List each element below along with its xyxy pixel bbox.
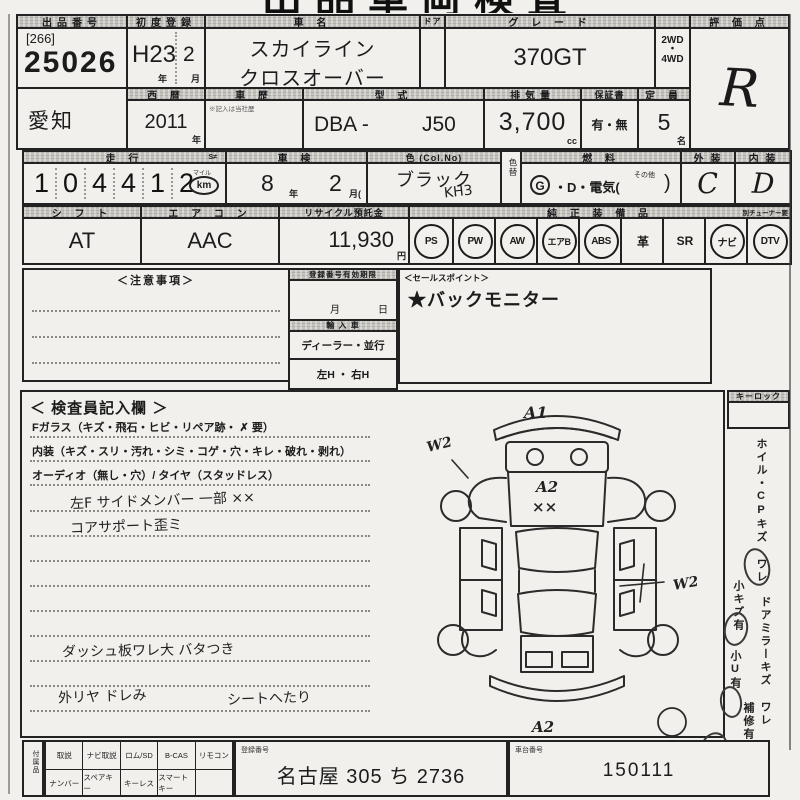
score-value: R [718,58,760,120]
registration-label: 登録番号 [241,745,269,755]
caution-line-1 [32,310,280,312]
unit-year: 年 [158,72,167,85]
region-value: 愛知 [18,89,126,135]
mileage-digit-4: 4 [115,168,144,199]
warranty-value: 有・無 [591,116,627,133]
warranty-cell: 有・無 [580,99,639,150]
mark-left-fender: W2 [425,434,454,456]
leather-label: 革 [637,233,649,250]
interior-check-line: 内装（キズ・スリ・汚れ・シミ・コゲ・穴・キレ・破れ・剥れ） [32,443,351,459]
front-panel-shape [506,442,608,472]
small-dent-note: 小U有 [727,650,743,690]
import-options: ディーラー・並行 [301,338,384,353]
equipment-cell-abs: ABS [578,219,622,263]
validity-day: 日 [378,301,388,316]
fuel-other-label: その他 [634,170,655,180]
abs-badge: ABS [584,224,619,259]
registration-cell: 登録番号 名古屋 305 ち 2736 [234,740,508,797]
note-guideline [30,585,370,587]
sales-point-box: ＜セールスポイント＞ ★バックモニター [398,268,712,384]
fuel-paren-close: ) [664,172,671,195]
drive-cell: 2WD ・ 4WD [654,27,691,89]
equipment-cell-sr: SR [662,219,706,263]
mark-hood-xx: ×× [532,498,557,516]
registration-value: 名古屋 305 ち 2736 [236,760,506,789]
keylock-cell [727,401,790,429]
grade-value: 370GT [513,44,586,72]
color-change-cell: 色替 [500,150,522,205]
accessories-grid: 取説 ナビ取説 ロム/SD B-CAS リモコン ナンバー スペアキー キーレス… [44,740,234,797]
exterior-grade-value: C [696,166,720,200]
mileage-digit-1: 1 [28,168,57,199]
calendar-cell: 2011 年 [126,99,206,150]
model-prefix: DBA - [314,113,369,137]
left-front-wheel [441,491,471,521]
auction-sheet: 出品車両検査票 出品番号 初度登録 車 名 ドア グ レ ー ド 評 価 点 [… [0,0,800,800]
first-registration-cell: H23 2 年 月 [126,27,206,89]
pw-label: PW [467,236,482,247]
note-guideline [30,436,370,438]
mileage-digit-5: 1 [144,168,173,199]
history-note: ※記入は当社歴 [206,101,302,113]
color-value: ブラック [368,166,500,192]
sales-point-value: ★バックモニター [400,284,710,312]
fuel-cell: G ・D・電気( その他 ) [520,162,682,205]
hand-note-seat: シートへたり [227,687,312,710]
km-unit-circled: km [189,176,219,195]
acc-rom-sd: ロム/SD [121,742,158,769]
pw-badge: PW [458,224,493,259]
note-guideline [30,460,370,462]
note-guideline [30,484,370,486]
acc-spare-key: スペアキー [83,770,120,796]
score-cell: R [689,27,790,150]
inspector-box: ＜ 検査員記入欄 ＞ Fガラス（キズ・飛石・ヒビ・リペア跡・ ✗ 要） 内装（キ… [20,390,725,738]
equipment-cell-pw: PW [452,219,496,263]
lot-number-cell: [266] 25026 [16,27,128,89]
lot-number: 25026 [18,46,126,80]
sales-point-label: ＜セールスポイント＞ [400,270,710,284]
equipment-cell-leather: 革 [620,219,664,263]
hand-note-dashpanel: ダッシュ板ワレ大 バタつき [62,638,235,661]
drive-dot: ・ [656,46,689,54]
color-code-handwritten: KH3 [443,183,473,202]
mileage-digit-2: 0 [57,168,86,199]
color-change-label: 色替 [507,158,519,177]
repair-note: 補修有 [740,702,756,741]
leather-badge: 革 [637,233,649,250]
car-name-line1: スカイライン [206,33,419,62]
car-damage-diagram: A1 W2 A2 ×× W2 A2 [422,394,724,738]
caution-line-2 [32,336,280,338]
equipment-cell-dtv: DTV [746,219,792,263]
mark-front-bumper: A1 [522,403,548,422]
history-cell: ※記入は当社歴 [204,99,304,150]
mark-rear-bumper: A2 [530,718,554,736]
note-guideline [30,710,370,712]
fuel-gasoline-circled: G [530,175,550,195]
grade-cell: 370GT [444,27,656,89]
ps-badge: PS [414,224,449,259]
acc-manual: 取説 [46,742,83,769]
mark-right-side: W2 [672,574,700,594]
acc-remote: リモコン [196,742,232,769]
handle-options-cell: 左H ・ 右H [288,358,398,390]
airbag-label: エアB [548,235,571,248]
abs-label: ABS [591,236,611,247]
recycle-value: 11,930 [280,227,394,253]
aircon-value: AAC [187,228,232,254]
aircon-cell: AAC [140,217,280,265]
validity-month: 月 [330,301,340,316]
accessories-label: 付属品 [30,750,40,774]
mileage-cell: 104412 マイル km [22,162,227,205]
acc-navi-manual: ナビ取説 [83,742,120,769]
drive-4wd: 4WD [656,54,689,65]
region-cell: 愛知 [16,87,128,150]
hand-note-outer: 外リヤ ドレみ [58,684,147,707]
first-reg-divider [175,32,177,84]
audio-tire-check-line: オーディオ（無し・穴）/ タイヤ（スタッドレス） [32,467,279,483]
displacement-cell: 3,700 cc [483,99,582,150]
color-cell: ブラック KH3 [366,162,502,205]
door-mirror-note: ドアミラーキズ ワレ [757,596,773,727]
mileage-header-s: S≠ [208,154,217,161]
capacity-value: 5 [639,109,689,136]
equipment-cell-airbag: エアB [536,219,580,263]
hand-circle-mark [658,708,686,736]
sunroof-badge: SR [677,234,694,248]
shaken-year-value: 8 [261,170,274,197]
right-rear-wheel [648,625,678,655]
rear-window-shape [518,590,596,636]
model-value: J50 [422,113,456,137]
chassis-cell: 車台番号 150111 [508,740,770,797]
note-guideline [30,610,370,612]
aw-badge: AW [500,224,535,259]
recycle-cell: 11,930 円 [278,217,410,265]
rear-bumper-shape [490,676,624,701]
equipment-cell-aw: AW [494,219,538,263]
acc-bcas: B-CAS [158,742,195,769]
sheet-title-clipped: 出品車両検査票 [262,0,622,13]
windshield-shape [516,528,598,572]
recycle-unit: 円 [397,249,406,262]
caution-line-3 [32,362,280,364]
dtv-badge: DTV [753,224,788,259]
shaken-cell: 8 年 2 月( [225,162,368,205]
caution-box: ＜注意事項＞ [22,268,290,382]
calendar-value: 2011 [128,111,204,134]
displacement-unit: cc [567,136,577,146]
hand-stroke-left [452,460,468,478]
chassis-label: 車台番号 [515,745,543,755]
accessories-label-cell: 付属品 [22,740,44,797]
navi-badge: ナビ [710,224,745,259]
capacity-unit: 名 [677,134,686,147]
model-code-cell: DBA - J50 [302,99,485,150]
tuner-note: 別チューナー要 [743,207,789,217]
shaken-month-unit: 月( [349,187,361,200]
interior-grade-value: D [751,167,775,201]
scan-edge-right [789,14,791,750]
acc-smart-key: スマートキー [158,770,195,796]
calendar-unit: 年 [192,133,201,146]
validity-cell: 月 日 [288,279,398,321]
hand-circle-scratch [721,610,751,648]
right-front-wheel [645,491,675,521]
left-rear-wheel [438,625,468,655]
first-reg-month: 2 [183,43,195,67]
shaken-month-value: 2 [329,170,342,197]
note-guideline [30,635,370,637]
capacity-cell: 5 名 [637,99,691,150]
acc-keyless: キーレス [121,770,158,796]
displacement-value: 3,700 [485,108,580,137]
aw-label: AW [509,236,524,247]
shift-cell: AT [22,217,142,265]
ps-label: PS [425,236,437,247]
fuel-options: ・D・電気( [554,177,620,196]
navi-label: ナビ [718,234,737,249]
chassis-value: 150111 [510,760,768,782]
mileage-digit-3: 4 [86,168,115,199]
equipment-row: PS PW AW エアB ABS 革 SR ナビ DTV [408,217,792,265]
shaken-year-unit: 年 [289,187,298,200]
equipment-cell-ps: PS [410,219,452,263]
lot-bracket: [266] [18,29,126,46]
exterior-grade-cell: C [680,162,736,205]
unit-month: 月 [191,72,200,85]
shift-value: AT [69,228,95,254]
acc-number-plate: ナンバー [46,770,83,796]
sheet-title-text: 出品車両検査票 [262,0,622,13]
acc-empty [196,770,232,796]
first-reg-era: H23 [132,41,176,69]
handle-options: 左H ・ 右H [317,367,370,382]
glass-check-line: Fガラス（キズ・飛石・ヒビ・リペア跡・ ✗ 要） [32,419,274,435]
equipment-cell-navi: ナビ [704,219,748,263]
interior-grade-cell: D [734,162,792,205]
door-cell [419,27,446,89]
sunroof-label: SR [677,234,694,248]
scan-edge-left [8,14,10,794]
airbag-badge: エアB [542,224,577,259]
caution-label: ＜注意事項＞ [24,272,288,288]
car-name-cell: スカイライン クロスオーバー [204,27,421,89]
mark-hood: A2 [534,478,558,496]
hand-note-coresupport: コアサポート歪ミ [70,514,183,538]
import-options-cell: ディーラー・並行 [288,330,398,360]
note-guideline [30,560,370,562]
dtv-label: DTV [761,236,780,247]
